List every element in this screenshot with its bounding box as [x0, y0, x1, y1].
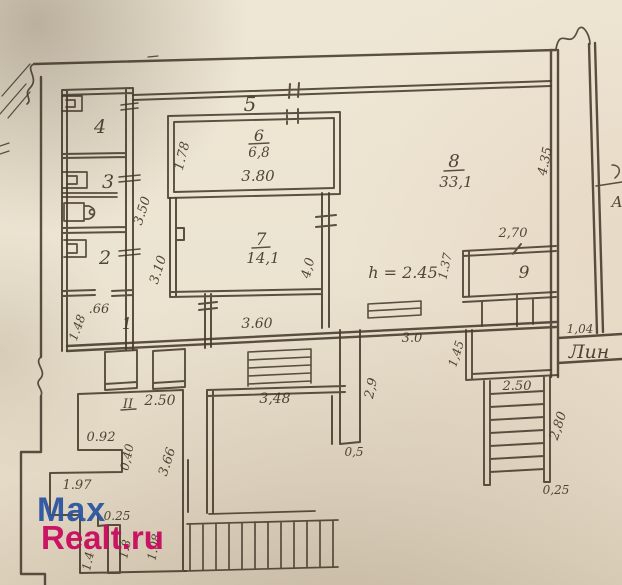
entry-steps: [248, 349, 311, 386]
room-7-label: 7: [256, 230, 267, 250]
room-6-width: 3.80: [241, 167, 275, 185]
dim-1-45: 1,45: [445, 339, 467, 369]
dim-1-48: 1.48: [66, 312, 88, 342]
toilet-icon: [64, 203, 95, 221]
radiator-icon: [368, 301, 421, 318]
break-squiggle-top-right: [556, 27, 590, 49]
dim-1-04: 1,04: [567, 322, 594, 336]
room-7-area: 14,1: [246, 249, 279, 267]
floorplan-scan: 4 3 2 1 5 6 6,8 3.80 1.78 7 14,1 3.50 3.…: [0, 0, 622, 585]
dim-3-0: 3.0: [402, 331, 423, 346]
dim-0-40: 0,40: [117, 442, 136, 471]
room-5-label: 5: [244, 92, 257, 116]
edge-letter: А: [610, 193, 622, 211]
room9-walls: [463, 244, 556, 326]
dim-3-66: 3.66: [156, 446, 179, 478]
room-8-label: 8: [448, 151, 459, 172]
room-8-area: 33,1: [439, 173, 472, 191]
dim-2-70: 2,70: [498, 226, 528, 241]
dim-0-25-stairs: 0,25: [543, 483, 570, 497]
sink-icon: [62, 96, 82, 111]
room-6-label: 6: [254, 126, 264, 145]
wall-piers: [105, 349, 185, 390]
room-6-area: 6,8: [248, 145, 270, 161]
room-348-dim: 3,48: [259, 391, 290, 407]
watermark: Max Realt.ru: [37, 497, 164, 551]
dim-2-9: 2,9: [362, 377, 381, 401]
break-squiggle-left: [38, 357, 42, 396]
room-1-label: 1: [122, 314, 132, 333]
room-9-label: 9: [519, 263, 530, 283]
room348-walls: [207, 330, 360, 513]
stairs-lower: [185, 511, 338, 571]
room-3-label: 3: [102, 171, 114, 193]
room-4-label: 4: [93, 116, 106, 138]
dim-1-37: 1.37: [435, 251, 454, 280]
dim-3-60: 3.60: [241, 316, 272, 332]
break-squiggle-top-left: [27, 64, 34, 104]
dim-4-0: 4,0: [299, 256, 319, 281]
height-note: h = 2.45: [368, 263, 438, 282]
corridor-II-dim: 2.50: [143, 393, 175, 409]
stairs-upper: [466, 330, 558, 485]
watermark-realt: Realt.ru: [41, 524, 164, 551]
dim-0-5: 0,5: [344, 445, 363, 459]
street-label: Лин: [568, 341, 610, 363]
room-2-label: 2: [98, 247, 111, 269]
dim-2-50-stairs: 2.50: [502, 379, 532, 394]
dim-3-10: 3.10: [147, 254, 170, 286]
corridor5-wall: [133, 81, 551, 100]
dim-066: .66: [89, 302, 110, 317]
scan-artifacts: [0, 56, 158, 154]
dim-0-92: 0.92: [87, 430, 116, 445]
dim-3-50: 3.50: [131, 195, 154, 227]
dim-1-78: 1.78: [172, 140, 194, 172]
dim-4-35: 4.35: [535, 146, 556, 178]
corridor-II-label: II: [122, 397, 134, 412]
